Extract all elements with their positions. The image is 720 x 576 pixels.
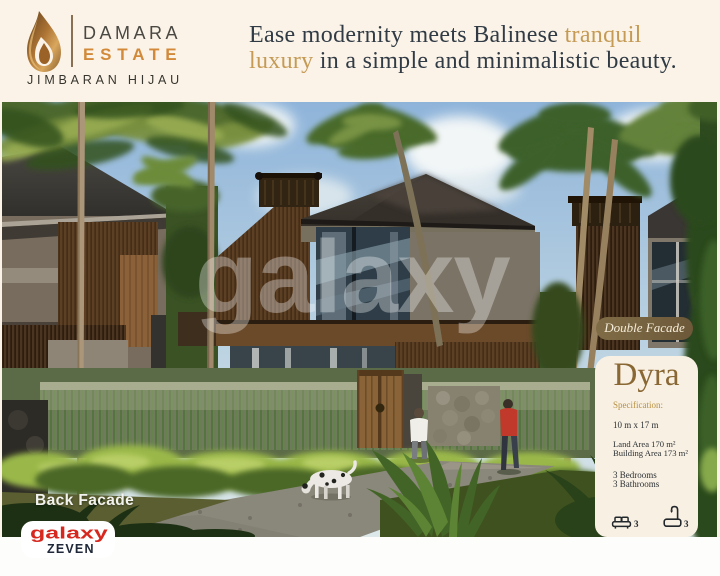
svg-text:galaxy: galaxy: [195, 219, 510, 334]
